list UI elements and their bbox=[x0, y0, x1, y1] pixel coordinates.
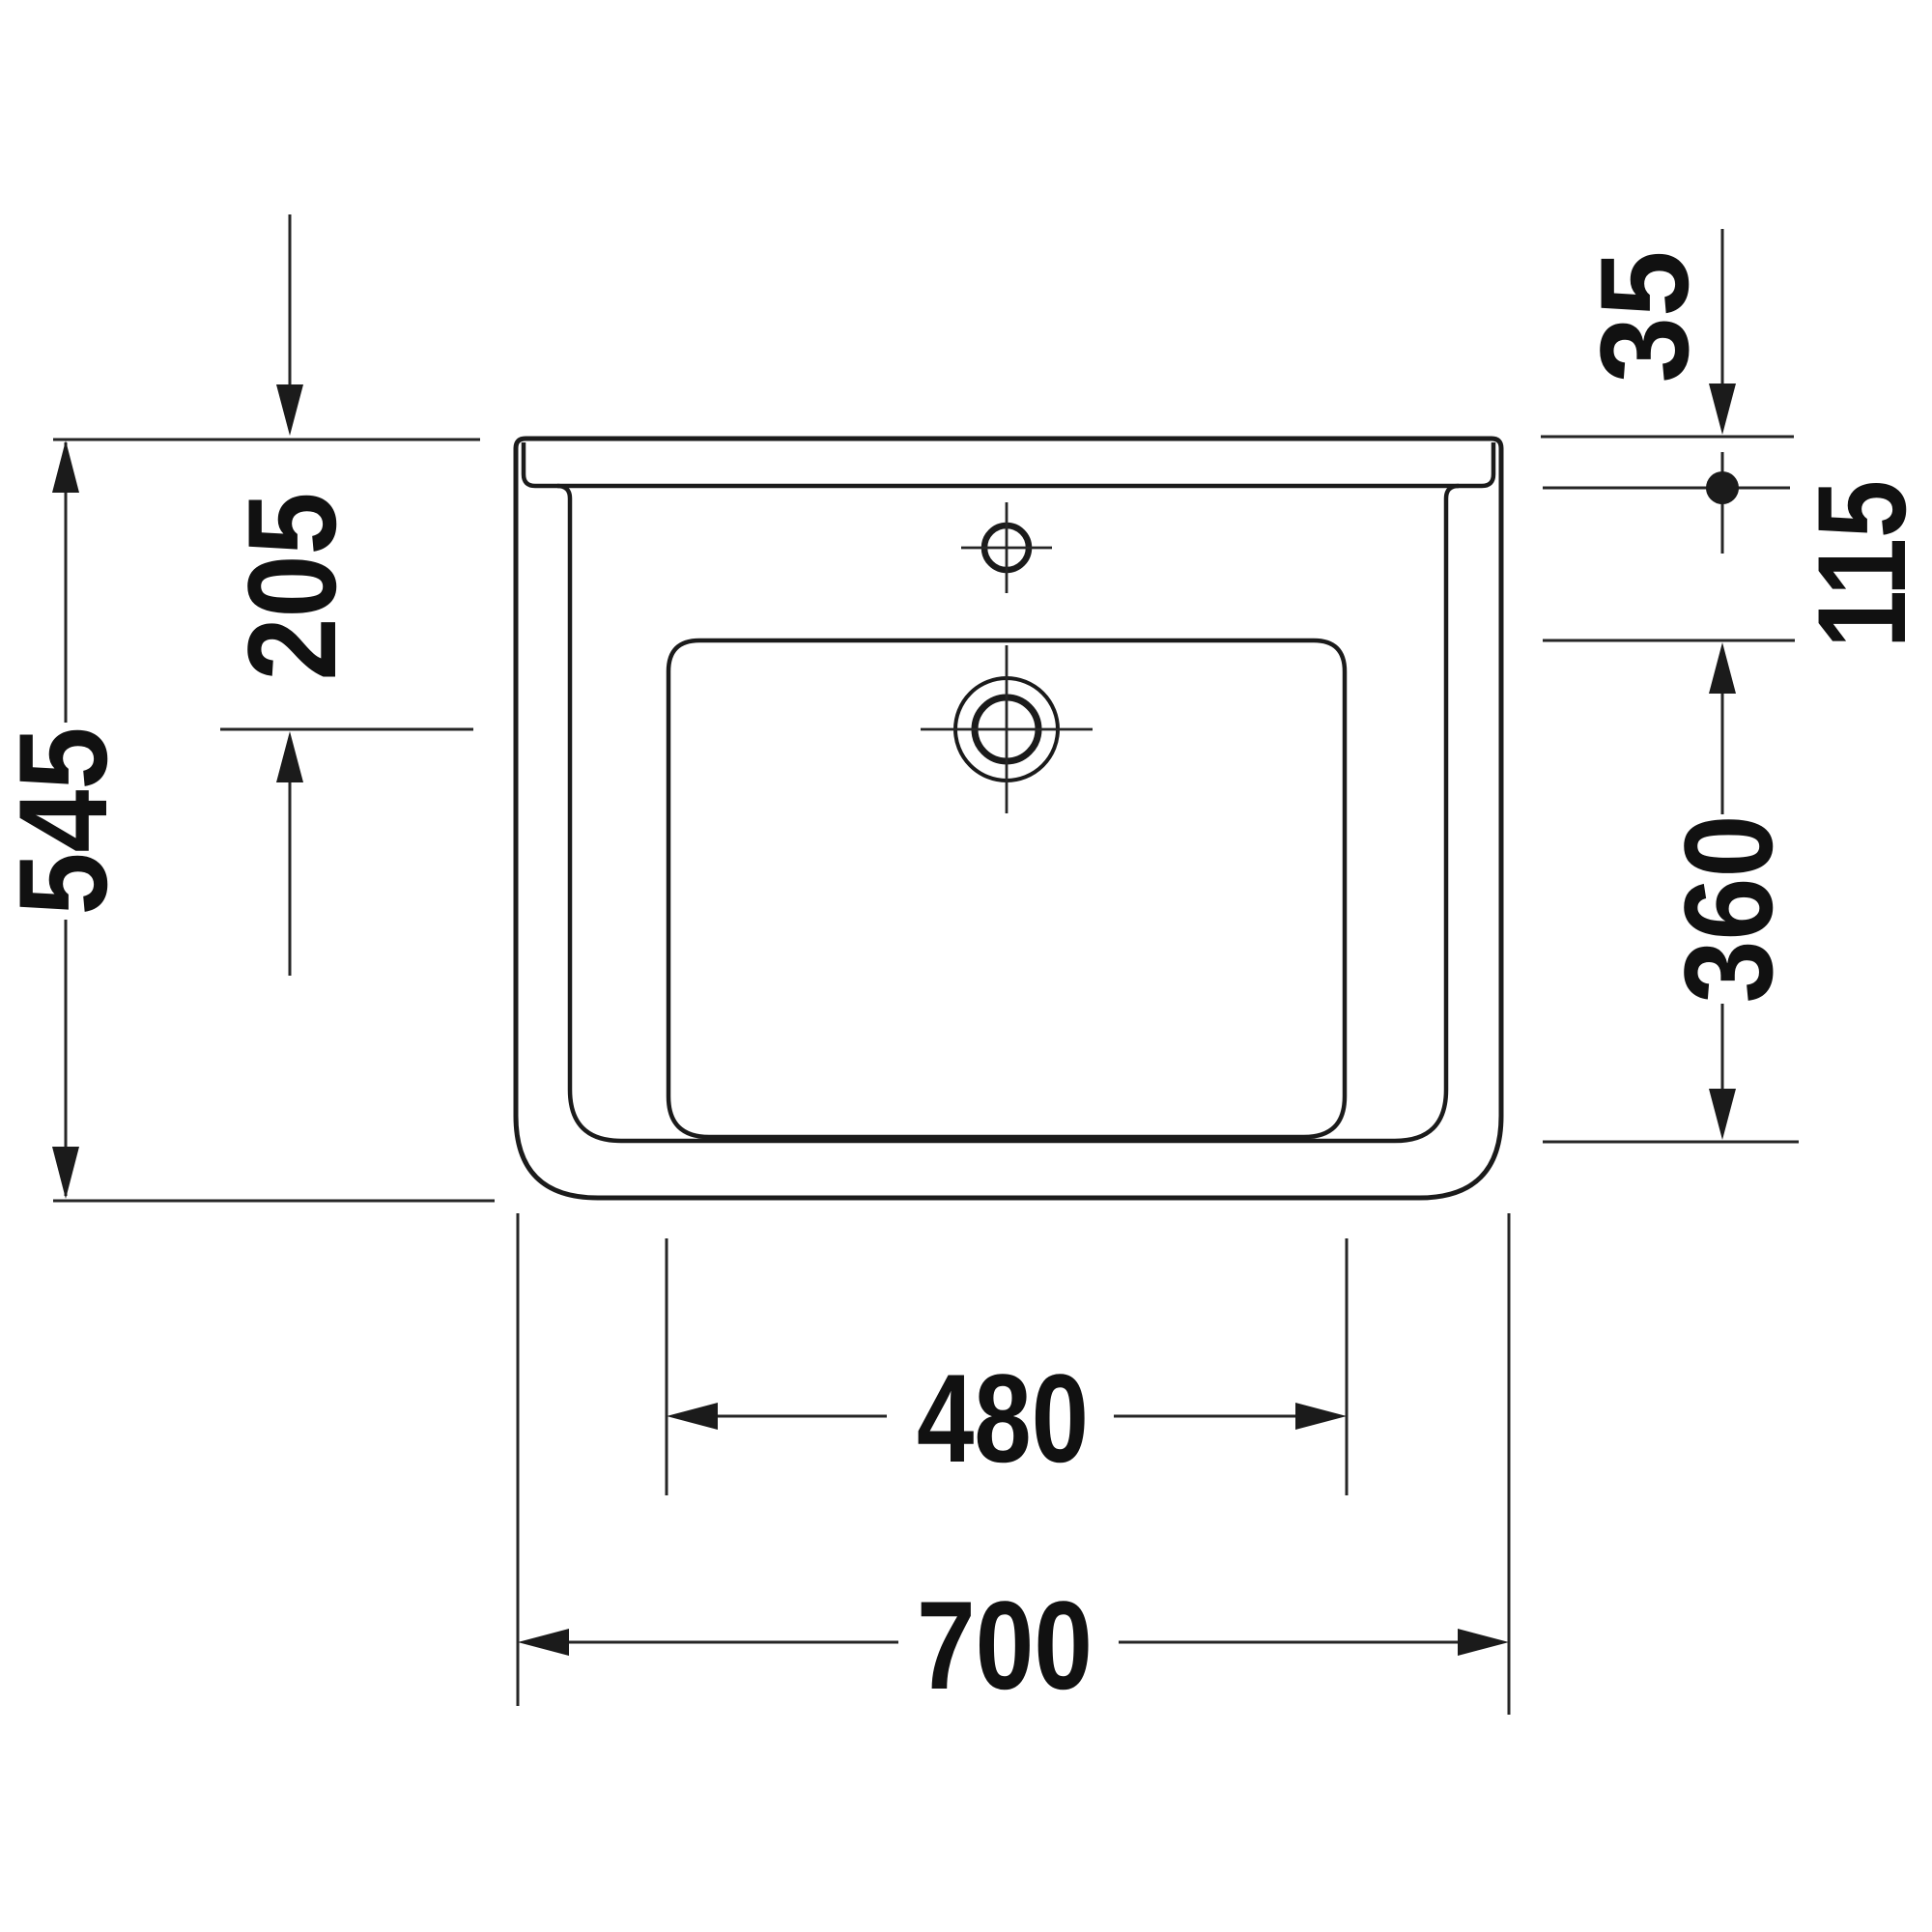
dim-label-115: 115 bbox=[1791, 480, 1932, 648]
dimension-bottom-group: 480 700 bbox=[518, 1213, 1509, 1716]
basin-outer-outline bbox=[516, 439, 1501, 1198]
dimension-right-group: 35 115 360 bbox=[1541, 229, 1932, 1142]
dim-label-205: 205 bbox=[221, 493, 362, 681]
arrow-down-icon bbox=[52, 1147, 79, 1199]
dim-label-700: 700 bbox=[917, 1575, 1093, 1716]
technical-drawing-page: 545 205 35 115 bbox=[0, 0, 1932, 1932]
dimension-35: 35 bbox=[1574, 229, 1736, 435]
dimension-left-group: 545 205 bbox=[0, 214, 495, 1201]
reference-dot-icon bbox=[1706, 471, 1739, 504]
dim-label-545: 545 bbox=[0, 727, 133, 916]
drain-marker bbox=[921, 645, 1093, 813]
basin-bowl-outline bbox=[557, 486, 1459, 1141]
dimension-205: 205 bbox=[221, 214, 362, 976]
arrow-left-icon bbox=[667, 1403, 718, 1430]
arrow-up-icon bbox=[1709, 642, 1736, 694]
dimension-360: 360 bbox=[1658, 642, 1799, 1140]
arrow-down-icon bbox=[276, 384, 303, 436]
basin-outlines bbox=[516, 439, 1501, 1198]
arrow-right-icon bbox=[1458, 1629, 1509, 1656]
tap-hole-marker bbox=[961, 502, 1052, 593]
dim-label-360: 360 bbox=[1658, 815, 1799, 1004]
dimension-115: 115 bbox=[1706, 452, 1932, 648]
arrow-down-icon bbox=[1709, 1089, 1736, 1140]
arrow-right-icon bbox=[1295, 1403, 1347, 1430]
arrow-up-icon bbox=[276, 731, 303, 782]
dimension-480: 480 bbox=[667, 1348, 1347, 1489]
washbasin-dimension-diagram: 545 205 35 115 bbox=[0, 0, 1932, 1932]
arrow-up-icon bbox=[52, 440, 79, 493]
dim-label-480: 480 bbox=[917, 1348, 1089, 1489]
dim-label-35: 35 bbox=[1574, 251, 1715, 384]
basin-rim-line bbox=[524, 442, 1493, 486]
dimension-700: 700 bbox=[518, 1575, 1509, 1716]
arrow-down-icon bbox=[1709, 384, 1736, 435]
dimension-545: 545 bbox=[0, 440, 133, 1199]
arrow-left-icon bbox=[518, 1629, 569, 1656]
